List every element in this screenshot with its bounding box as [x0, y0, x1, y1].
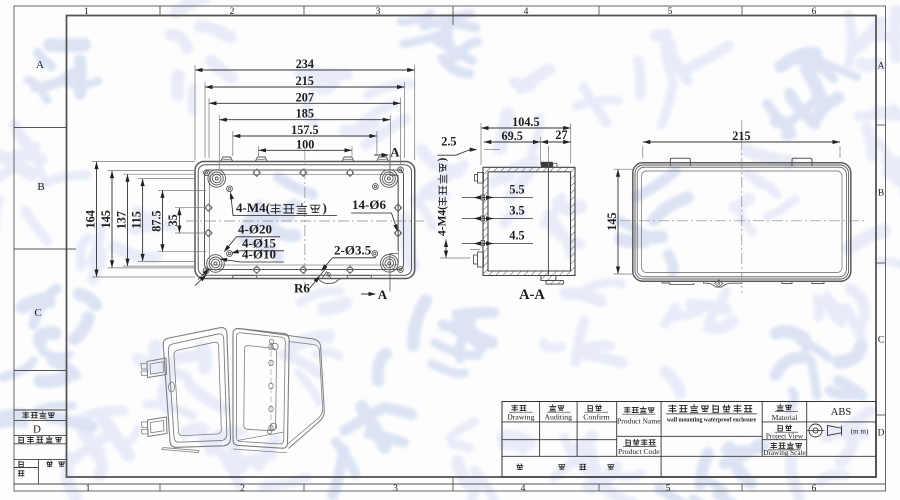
svg-text:A: A	[390, 145, 400, 160]
svg-text:Product Code: Product Code	[618, 447, 660, 456]
svg-text:3: 3	[393, 484, 398, 494]
svg-text:Project View: Project View	[766, 432, 804, 440]
svg-text:B: B	[37, 181, 44, 193]
svg-text:35: 35	[166, 214, 180, 226]
svg-text:A: A	[878, 62, 885, 72]
svg-text:D: D	[33, 423, 41, 435]
svg-text:4-Ø20: 4-Ø20	[238, 222, 272, 237]
svg-text:ABS: ABS	[831, 407, 852, 418]
svg-text:): )	[437, 158, 449, 162]
svg-text:215: 215	[296, 74, 314, 88]
svg-text:145: 145	[605, 212, 619, 230]
svg-text:6: 6	[812, 484, 817, 494]
svg-text:wall mounting waterproof enclo: wall mounting waterproof enclosure	[667, 418, 757, 424]
svg-text:4-M4(: 4-M4(	[236, 200, 270, 215]
svg-text:A: A	[378, 287, 388, 302]
svg-text:115: 115	[129, 211, 143, 229]
svg-text:Drawing: Drawing	[507, 413, 534, 422]
svg-text:145: 145	[99, 210, 113, 228]
svg-text:4: 4	[521, 484, 526, 494]
svg-text:4: 4	[524, 7, 529, 17]
svg-text:(m m): (m m)	[851, 427, 869, 435]
svg-text:137: 137	[114, 211, 128, 229]
svg-text:1: 1	[86, 484, 91, 494]
svg-text:87.5: 87.5	[149, 210, 163, 231]
svg-text:2: 2	[230, 7, 235, 17]
svg-text:104.5: 104.5	[512, 115, 539, 129]
svg-text:Auditing: Auditing	[544, 413, 572, 422]
svg-text:100: 100	[296, 137, 314, 151]
svg-text:14-Ø6: 14-Ø6	[352, 197, 386, 212]
svg-text:2: 2	[240, 484, 245, 494]
svg-text:5.5: 5.5	[509, 183, 524, 197]
svg-text:215: 215	[732, 129, 750, 143]
svg-text:3.5: 3.5	[509, 204, 524, 218]
svg-text:R6: R6	[294, 281, 310, 296]
svg-text:6: 6	[812, 7, 817, 17]
svg-text:4-Ø10: 4-Ø10	[242, 247, 276, 262]
svg-text:Product Name: Product Name	[617, 417, 661, 426]
svg-text:5: 5	[668, 7, 673, 17]
svg-text:185: 185	[296, 107, 314, 121]
svg-text:207: 207	[296, 90, 314, 104]
svg-text:27: 27	[555, 128, 567, 142]
svg-text:D: D	[878, 429, 885, 439]
svg-text:): )	[323, 200, 327, 215]
svg-text:1: 1	[84, 7, 89, 17]
svg-text:Material: Material	[772, 413, 798, 422]
svg-text:5: 5	[666, 484, 671, 494]
svg-text:Drawing Scale: Drawing Scale	[763, 449, 806, 457]
svg-text:A-A: A-A	[519, 287, 545, 303]
svg-text:C: C	[878, 336, 884, 346]
svg-text:157.5: 157.5	[291, 123, 318, 137]
svg-text:2.5: 2.5	[441, 134, 456, 148]
svg-text:164: 164	[83, 210, 97, 228]
svg-text:234: 234	[296, 57, 314, 71]
svg-text:A: A	[36, 59, 44, 71]
svg-text:Confirm: Confirm	[583, 413, 609, 422]
svg-text:2-Ø3.5: 2-Ø3.5	[334, 243, 372, 258]
svg-text:69.5: 69.5	[501, 129, 522, 143]
svg-text:C: C	[34, 307, 41, 319]
svg-text:4.5: 4.5	[509, 229, 524, 243]
svg-text:4-M4(: 4-M4(	[437, 206, 449, 236]
svg-text:B: B	[878, 189, 884, 199]
svg-text:3: 3	[376, 7, 381, 17]
